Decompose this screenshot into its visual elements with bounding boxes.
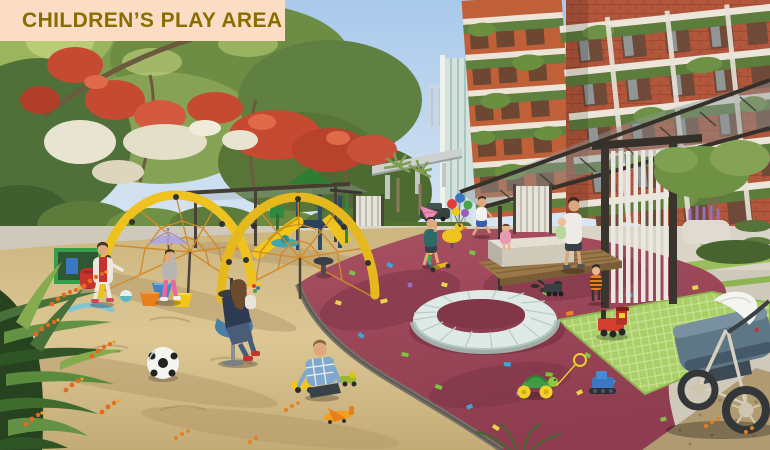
title-banner: CHILDREN’S PLAY AREA [0, 0, 285, 41]
title-label: CHILDREN’S PLAY AREA [22, 9, 282, 33]
soccer-ball [147, 347, 179, 382]
scene-canvas [0, 0, 770, 450]
bench-slat-screen [513, 184, 552, 234]
teal-ball [120, 290, 132, 302]
playground-render: CHILDREN’S PLAY AREA [0, 0, 770, 450]
